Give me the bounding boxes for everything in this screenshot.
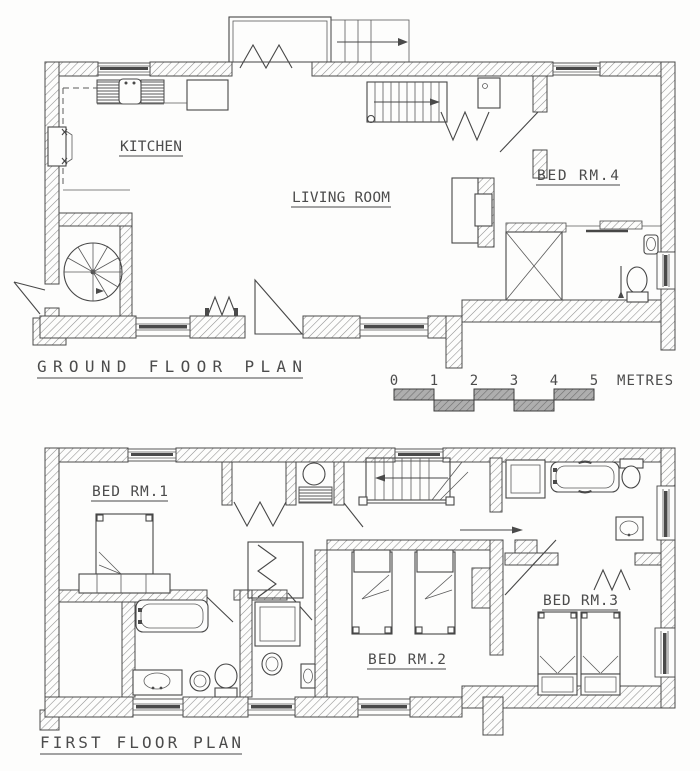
scale-tick-1: 1	[430, 373, 438, 389]
bathtub	[136, 600, 208, 632]
window	[98, 63, 150, 75]
hall-cupboard	[478, 78, 500, 108]
spiral-staircase	[64, 243, 122, 301]
kitchen-sink-unit	[97, 79, 164, 104]
bed-foot-bench	[79, 574, 170, 593]
window	[358, 699, 410, 715]
bed-rm-3-label: BED RM.3	[543, 593, 618, 609]
twin-bed	[352, 550, 392, 634]
window	[248, 699, 295, 715]
window	[128, 449, 176, 461]
fireplace	[452, 178, 478, 243]
door-leaf	[207, 597, 233, 622]
entrance-steps	[331, 20, 409, 62]
living-room-door	[255, 280, 302, 334]
floor-plan-drawing: KITCHEN LIVING ROOM BED RM.4 GROUND FLOO…	[0, 0, 700, 771]
bedroom4-door	[500, 112, 538, 152]
ground-floor-walls	[33, 62, 675, 368]
toilet-brush	[618, 266, 624, 298]
steps-direction-arrow	[398, 38, 408, 46]
bed-rm-2-label: BED RM.2	[368, 652, 446, 668]
closet-bifold-door	[234, 502, 286, 526]
scale-tick-2: 2	[470, 373, 478, 389]
toilet	[190, 671, 210, 691]
wash-basin	[644, 235, 658, 254]
staircase	[359, 458, 468, 505]
scale-bar: 0 1 2 3 4 5 METRES	[390, 373, 673, 411]
bottom-bifold-door	[205, 297, 238, 316]
side-door	[14, 282, 45, 314]
twin-bed	[415, 550, 455, 634]
first-floor-plan: BED RM.1 BED RM.2 BED RM.3 FIRST FLOOR P…	[40, 448, 675, 754]
stairs-up-arrow	[430, 99, 440, 106]
window	[136, 318, 190, 336]
scale-tick-5: 5	[590, 373, 598, 389]
twin-bed	[581, 612, 620, 695]
first-floor-title: FIRST FLOOR PLAN	[40, 733, 241, 752]
kitchen-sink	[119, 79, 141, 104]
ground-floor-title: GROUND FLOOR PLAN	[37, 357, 302, 376]
toilet	[262, 653, 282, 675]
kitchen-label: KITCHEN	[120, 139, 182, 155]
stairs-down-arrow	[375, 475, 385, 482]
bedroom3-bifold-door	[594, 570, 630, 590]
draining-board	[97, 80, 120, 103]
porch-double-door	[240, 45, 292, 68]
porch-outline	[229, 17, 331, 62]
toilet	[620, 459, 643, 488]
scale-tick-3: 3	[510, 373, 518, 389]
cooker	[48, 127, 72, 166]
wash-basin	[616, 517, 643, 540]
bathtub	[551, 461, 619, 494]
scale-tick-4: 4	[550, 373, 558, 389]
draining-board	[141, 80, 164, 103]
toilet	[215, 664, 237, 697]
newel-post	[446, 497, 454, 505]
window	[360, 318, 428, 336]
staircase	[367, 82, 447, 123]
kitchen-worktop	[187, 80, 228, 110]
window	[657, 486, 675, 540]
shower	[506, 460, 545, 498]
toilet	[627, 267, 648, 302]
fireplace-opening	[475, 194, 492, 226]
twin-bed	[538, 612, 577, 695]
door-leaf	[344, 503, 363, 527]
window	[553, 63, 600, 75]
hall-bifold-door	[441, 112, 489, 140]
floor-plan-document: KITCHEN LIVING ROOM BED RM.4 GROUND FLOO…	[0, 0, 700, 771]
landing-basin	[303, 463, 325, 485]
double-bed	[79, 514, 170, 593]
scale-unit-label: METRES	[617, 373, 673, 389]
newel-post	[359, 497, 367, 505]
cylinder-cupboard	[506, 232, 562, 300]
hall-arrow	[460, 527, 523, 534]
window	[655, 628, 675, 677]
window	[133, 699, 183, 715]
closet-accordion-door	[258, 545, 276, 597]
shelf-unit	[299, 487, 332, 503]
shower	[255, 602, 300, 646]
living-room-label: LIVING ROOM	[292, 190, 390, 206]
bed-rm-4-label: BED RM.4	[537, 168, 619, 184]
scale-tick-0: 0	[390, 373, 398, 389]
window	[657, 252, 675, 289]
wash-basin	[301, 664, 315, 688]
bed-rm-1-label: BED RM.1	[92, 484, 168, 500]
ground-floor-plan: KITCHEN LIVING ROOM BED RM.4 GROUND FLOO…	[14, 17, 675, 378]
vanity-basin	[133, 670, 182, 695]
